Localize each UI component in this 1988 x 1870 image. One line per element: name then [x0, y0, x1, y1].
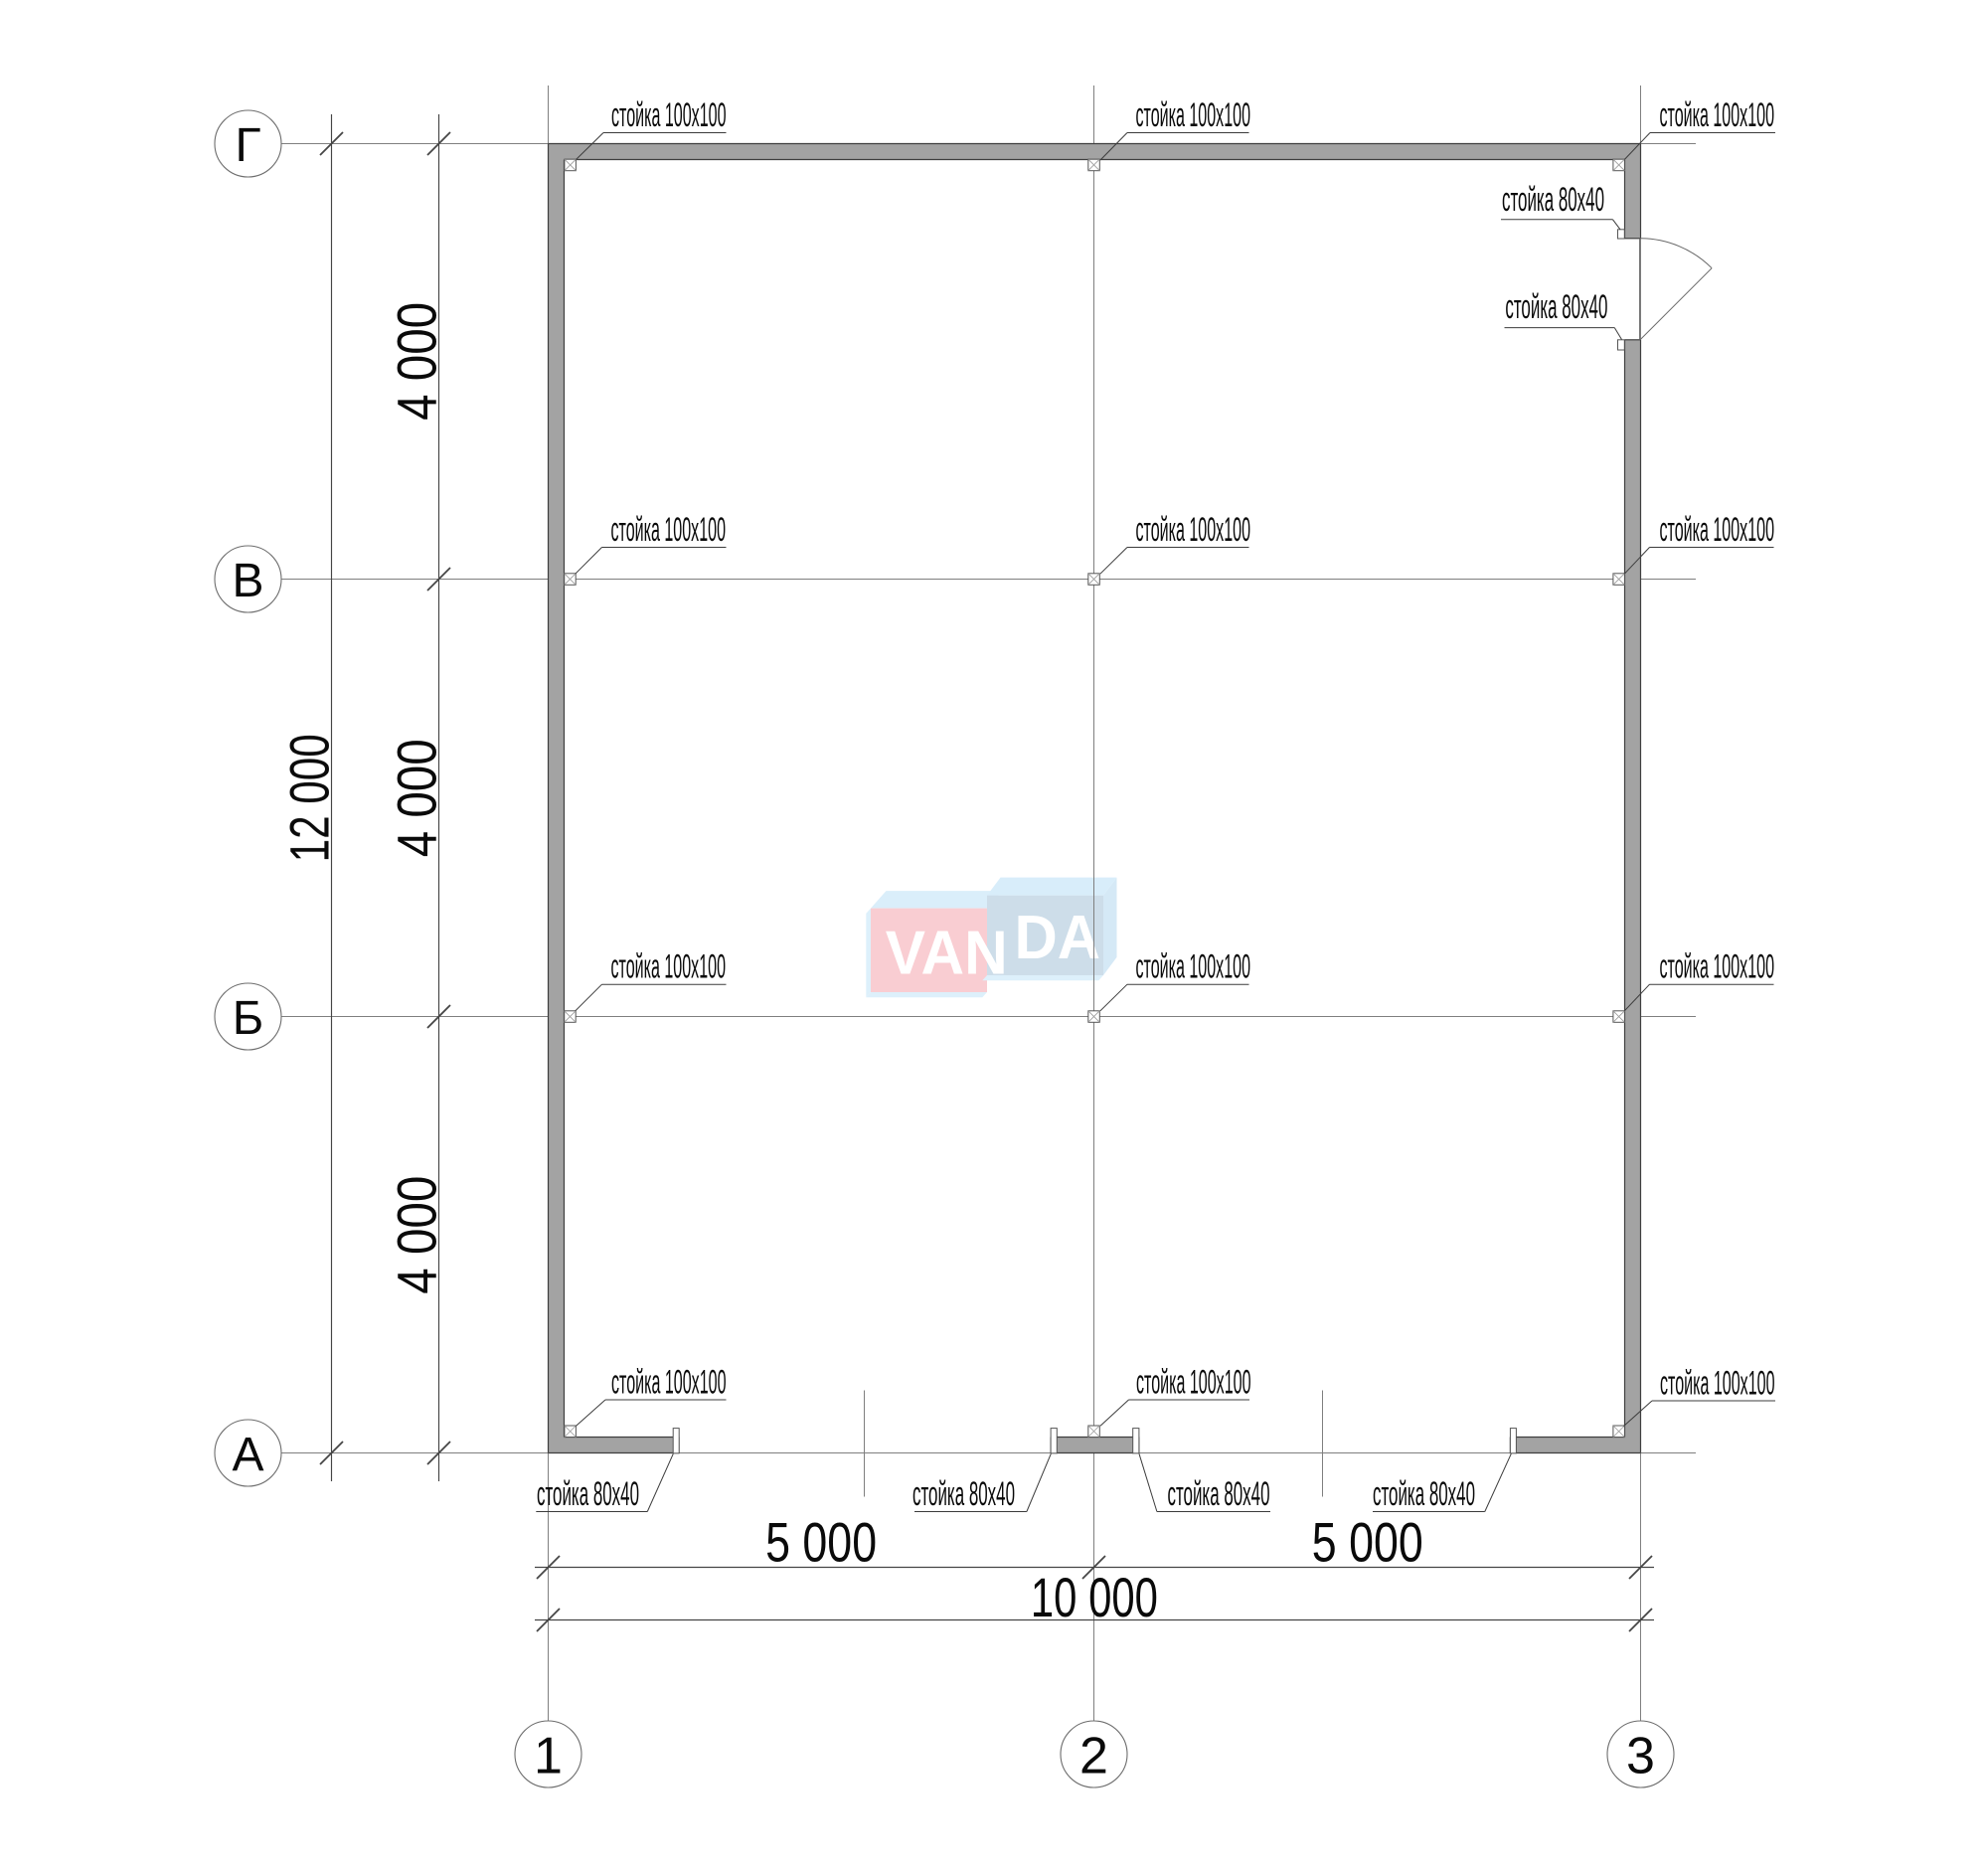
svg-text:стойка 100x100: стойка 100x100: [1136, 511, 1251, 549]
svg-text:стойка 80x40: стойка 80x40: [1168, 1475, 1270, 1513]
svg-text:Б: Б: [233, 992, 264, 1045]
svg-text:стойка 80x40: стойка 80x40: [537, 1475, 639, 1513]
svg-text:стойка 100x100: стойка 100x100: [611, 1364, 727, 1402]
svg-text:стойка 100x100: стойка 100x100: [611, 948, 727, 986]
svg-text:А: А: [232, 1429, 263, 1481]
svg-text:стойка 80x40: стойка 80x40: [912, 1475, 1015, 1513]
svg-text:VAN: VAN: [886, 919, 1008, 987]
svg-text:В: В: [232, 555, 263, 607]
svg-text:стойка 100x100: стойка 100x100: [611, 511, 727, 549]
svg-text:10 000: 10 000: [1031, 1567, 1158, 1628]
svg-text:стойка 80x40: стойка 80x40: [1373, 1475, 1475, 1513]
svg-text:4 000: 4 000: [387, 1176, 448, 1294]
svg-text:стойка 100x100: стойка 100x100: [1136, 948, 1251, 986]
svg-text:стойка 80x40: стойка 80x40: [1505, 288, 1607, 326]
svg-text:4 000: 4 000: [387, 302, 448, 421]
svg-text:3: 3: [1626, 1728, 1655, 1785]
svg-text:стойка 100x100: стойка 100x100: [1136, 96, 1251, 134]
svg-text:стойка 100x100: стойка 100x100: [611, 96, 727, 134]
svg-text:стойка 100x100: стойка 100x100: [1136, 1364, 1251, 1402]
svg-text:стойка 100x100: стойка 100x100: [1660, 1365, 1775, 1403]
svg-text:стойка 100x100: стойка 100x100: [1660, 948, 1775, 986]
svg-text:Г: Г: [236, 119, 261, 172]
svg-text:5 000: 5 000: [1312, 1512, 1423, 1574]
svg-text:2: 2: [1079, 1728, 1108, 1785]
svg-text:5 000: 5 000: [765, 1512, 877, 1574]
svg-text:стойка 100x100: стойка 100x100: [1660, 511, 1775, 549]
svg-text:DA: DA: [1015, 904, 1101, 972]
svg-text:4 000: 4 000: [387, 739, 448, 857]
svg-text:стойка 80x40: стойка 80x40: [1502, 181, 1604, 219]
svg-text:1: 1: [534, 1728, 563, 1785]
svg-text:12 000: 12 000: [278, 734, 340, 862]
svg-text:стойка 100x100: стойка 100x100: [1660, 96, 1775, 134]
